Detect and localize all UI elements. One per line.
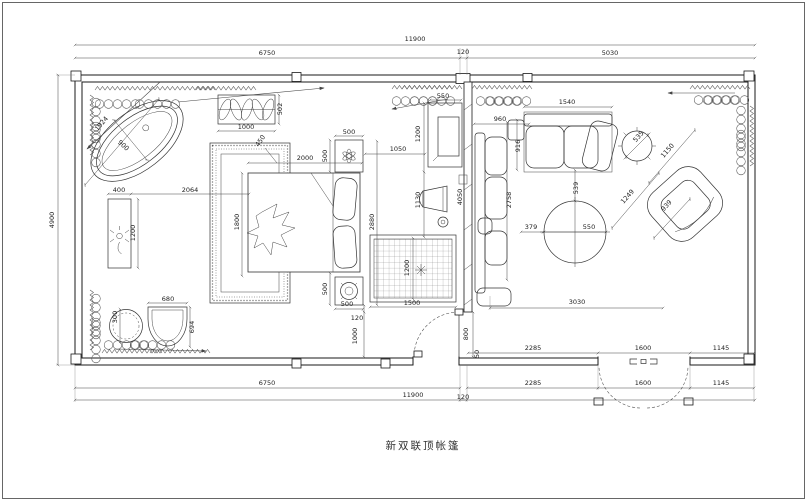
dim-label: 800: [462, 328, 470, 340]
sofa-l-section: [475, 133, 511, 306]
dim-label: 1145: [713, 344, 730, 352]
dim-label: 1500: [404, 299, 421, 307]
dim-label: 11900: [403, 391, 424, 399]
nightstand-top: [335, 140, 363, 172]
dim-label: 4050: [456, 189, 464, 206]
dim-label: 916: [514, 140, 522, 152]
dim-label: 1000: [238, 123, 255, 131]
dim-label: 6750: [259, 49, 276, 57]
plant-icon: [342, 149, 357, 163]
entry-door: [414, 309, 463, 357]
dim-label: 2285: [525, 344, 542, 352]
dim-label: 500: [321, 283, 329, 295]
dim-label: 400: [113, 186, 125, 194]
flower-icon: [110, 226, 129, 254]
dim-label: 502: [276, 103, 284, 115]
dim-label: 1924: [93, 115, 110, 133]
drawing-title: 新双联顶帐篷: [386, 439, 461, 452]
dim-label: 1050: [390, 145, 407, 153]
lamp-icon: [341, 283, 358, 300]
dim-label: 2064: [182, 186, 199, 194]
dim-label: 4900: [48, 212, 56, 229]
dim-label: 1200: [414, 126, 422, 143]
dim-label: 1200: [403, 260, 411, 277]
dim-label: 2000: [297, 154, 314, 162]
dim-label: 2285: [525, 379, 542, 387]
tv-cabinet: [428, 103, 467, 184]
dim-label: 500: [321, 150, 329, 162]
dim-label: 500: [341, 300, 353, 308]
dim-label: 120: [457, 393, 469, 401]
dim-label: 550: [437, 92, 449, 100]
dim-label: 1600: [635, 344, 652, 352]
dim-label: 960: [494, 115, 506, 123]
dim-label: 2758: [505, 192, 513, 209]
dim-label: 680: [162, 295, 174, 303]
dim-label: 2880: [368, 214, 376, 231]
dim-label: 900: [116, 138, 131, 152]
armchair: [640, 160, 729, 249]
dim-label: 6750: [259, 379, 276, 387]
dim-label: 379: [525, 223, 537, 231]
bed: [247, 173, 360, 272]
dim-label: 939: [659, 198, 673, 213]
dim-label: 1000: [351, 328, 359, 345]
bench: [108, 199, 131, 268]
dim-label: 500: [343, 128, 355, 136]
dim-label: 120: [457, 48, 469, 56]
dim-label: 1145: [713, 379, 730, 387]
dim-label: 300: [111, 311, 119, 323]
partition-wall: [464, 82, 472, 312]
dim-label: 1540: [559, 98, 576, 106]
dim-label: 1800: [233, 214, 241, 231]
floor-plan-page: 1190067501205030490022851600114567502285…: [0, 0, 807, 501]
dim-label: 1600: [635, 379, 652, 387]
dim-label: 120: [351, 314, 363, 322]
dim-label: 1200: [129, 225, 137, 242]
dim-label: 1150: [659, 142, 676, 160]
dim-label: 50: [473, 350, 481, 358]
dim-label: 539: [572, 182, 580, 194]
dim-label: 3030: [569, 298, 586, 306]
dim-label: 11900: [405, 35, 426, 43]
dim-label: 1130: [414, 192, 422, 209]
dim-label: 5030: [602, 49, 619, 57]
sofa-top-section: [508, 112, 619, 173]
outer-walls: [71, 71, 755, 368]
floor-plan-canvas: 1190067501205030490022851600114567502285…: [0, 0, 807, 501]
dim-label: 450: [254, 133, 268, 148]
dim-label: 550: [583, 223, 595, 231]
washbasin-chair: [148, 307, 187, 346]
dim-label: 694: [188, 321, 196, 333]
